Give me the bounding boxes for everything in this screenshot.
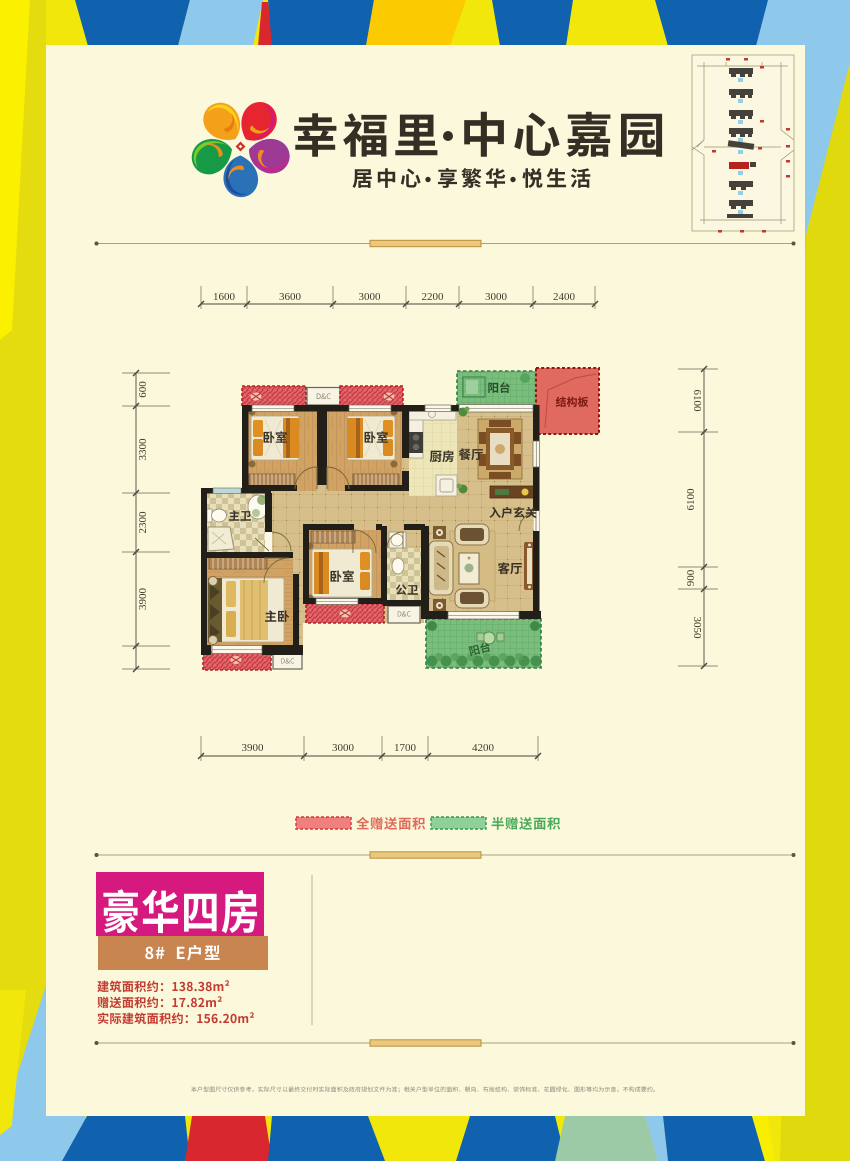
svg-text:4200: 4200 <box>472 742 495 754</box>
svg-text:3050: 3050 <box>691 617 703 640</box>
svg-text:1700: 1700 <box>394 742 417 754</box>
svg-text:900: 900 <box>685 569 697 586</box>
svg-text:2200: 2200 <box>422 291 445 303</box>
svg-text:3900: 3900 <box>242 742 265 754</box>
svg-text:3000: 3000 <box>359 291 382 303</box>
svg-text:3900: 3900 <box>137 588 149 611</box>
svg-text:3300: 3300 <box>137 438 149 461</box>
svg-text:2400: 2400 <box>553 291 576 303</box>
svg-text:3000: 3000 <box>332 742 355 754</box>
svg-text:1600: 1600 <box>213 291 236 303</box>
svg-text:600: 600 <box>137 381 149 398</box>
svg-text:3600: 3600 <box>279 291 302 303</box>
svg-text:2300: 2300 <box>137 511 149 534</box>
svg-text:6100: 6100 <box>691 390 703 413</box>
svg-text:3000: 3000 <box>485 291 508 303</box>
svg-text:6100: 6100 <box>685 488 697 511</box>
